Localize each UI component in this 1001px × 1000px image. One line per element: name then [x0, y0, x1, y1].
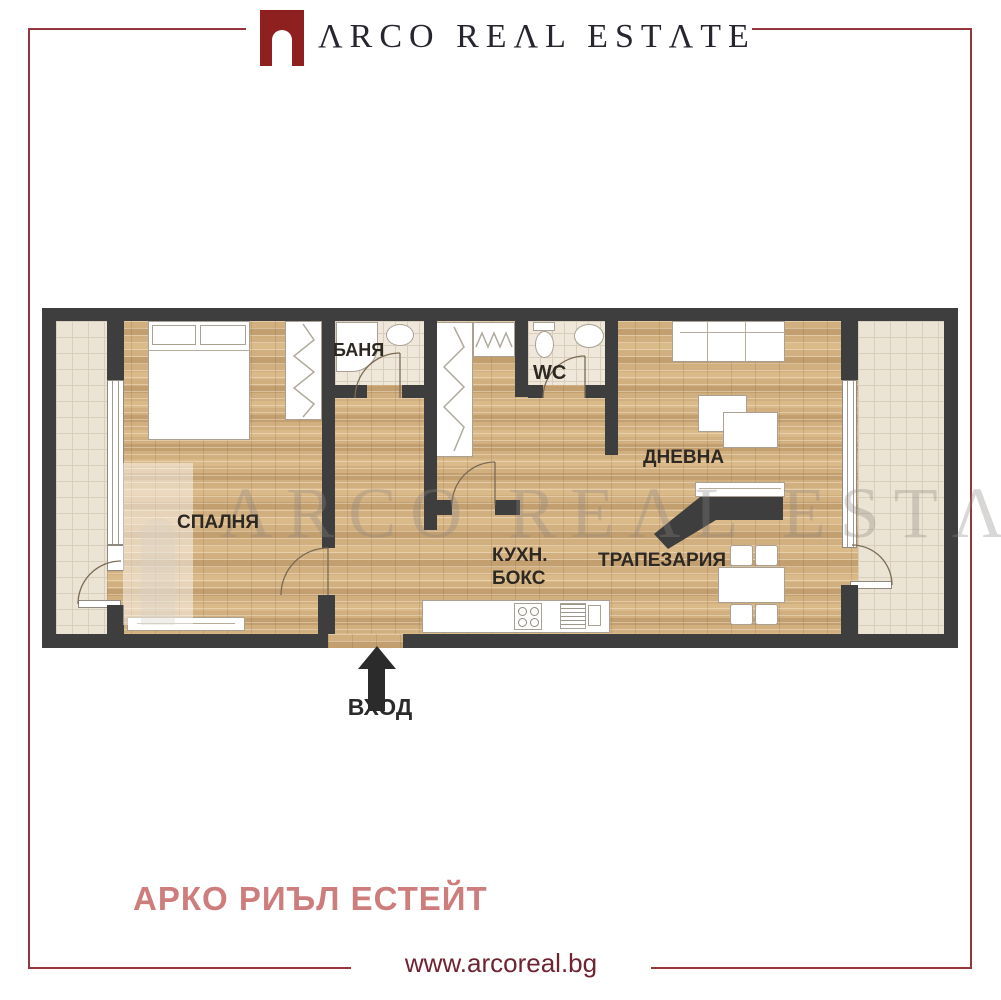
arch-cutout [272, 30, 292, 66]
door-swings [42, 308, 958, 648]
arco-arch-logo-icon [260, 10, 304, 66]
entrance-arrow-shaft [368, 668, 385, 711]
agency-name: АРКО РИЪЛ ЕСТЕЙТ [133, 880, 488, 918]
kitchen-label-line1: КУХН. [492, 544, 548, 567]
floor-plan: ΛRCO REΛL ESTΛTE СПАЛНЯ БАНЯ WC ДНЕВНА К… [42, 308, 958, 648]
brand-wordmark: ΛRCO REΛL ESTΛTE [318, 18, 778, 62]
floorplan-sheet: ΛRCO REΛL ESTΛTE [0, 0, 1001, 1000]
tv-bench [654, 497, 783, 549]
entrance-arrow-icon [358, 646, 396, 669]
kitchen-label-line2: БОКС [492, 567, 548, 590]
room-label-bathroom: БАНЯ [333, 340, 384, 361]
room-label-wc: WC [533, 362, 566, 385]
website-url: www.arcoreal.bg [351, 948, 651, 979]
room-label-living: ДНЕВНА [643, 447, 724, 469]
room-label-dining: ТРАПЕЗАРИЯ [598, 550, 726, 572]
room-label-kitchen: КУХН. БОКС [492, 544, 548, 590]
room-label-bedroom: СПАЛНЯ [177, 512, 259, 534]
